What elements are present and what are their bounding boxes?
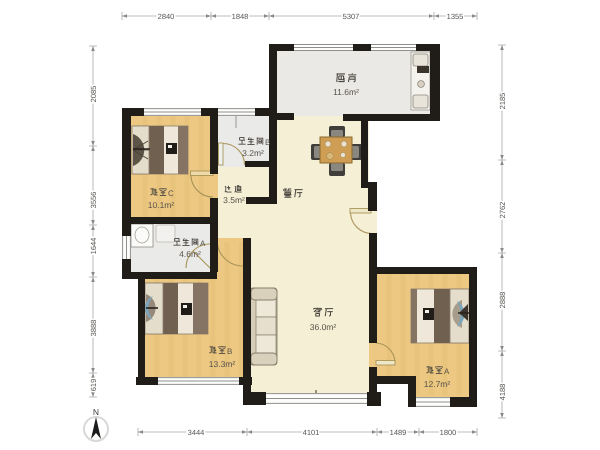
svg-text:4.6m²: 4.6m² — [179, 249, 201, 259]
svg-text:1848: 1848 — [232, 12, 249, 21]
svg-text:3556: 3556 — [89, 192, 98, 209]
svg-text:4101: 4101 — [303, 428, 320, 437]
svg-text:2840: 2840 — [158, 12, 175, 21]
svg-text:N: N — [93, 407, 99, 417]
svg-text:2185: 2185 — [498, 93, 507, 110]
svg-text:2888: 2888 — [498, 292, 507, 309]
svg-text:A: A — [444, 367, 450, 376]
svg-text:11.6m²: 11.6m² — [333, 87, 359, 97]
svg-text:3444: 3444 — [188, 428, 205, 437]
svg-text:1355: 1355 — [447, 12, 464, 21]
svg-text:3.5m²: 3.5m² — [223, 195, 245, 205]
svg-text:A: A — [200, 239, 206, 248]
svg-text:36.0m²: 36.0m² — [310, 322, 337, 332]
svg-text:12.7m²: 12.7m² — [424, 379, 451, 389]
svg-text:4188: 4188 — [498, 384, 507, 401]
svg-text:10.1m²: 10.1m² — [148, 200, 175, 210]
svg-text:1800: 1800 — [440, 428, 457, 437]
svg-text:B: B — [227, 347, 232, 356]
svg-text:3888: 3888 — [89, 320, 98, 337]
svg-text:C: C — [168, 189, 174, 198]
svg-text:13.3m²: 13.3m² — [209, 359, 236, 369]
svg-text:1644: 1644 — [89, 238, 98, 255]
svg-text:2085: 2085 — [89, 86, 98, 103]
svg-text:619: 619 — [89, 379, 98, 392]
svg-text:3.2m²: 3.2m² — [242, 148, 264, 158]
svg-text:5307: 5307 — [343, 12, 360, 21]
svg-text:1489: 1489 — [390, 428, 407, 437]
svg-text:2762: 2762 — [498, 202, 507, 219]
svg-text:B: B — [265, 138, 270, 147]
